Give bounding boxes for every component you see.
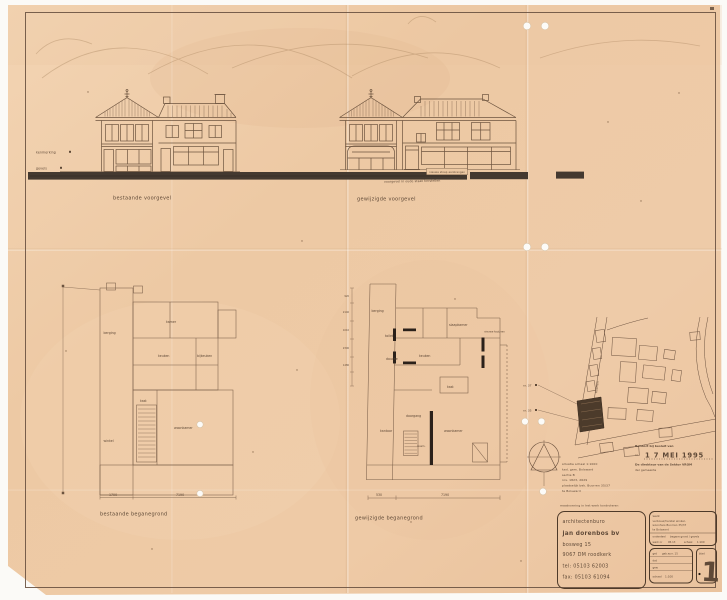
stamp-line: der gemeente bbox=[635, 468, 656, 472]
onderdeel-value: begane grond / gevels bbox=[670, 535, 700, 539]
room-label: doorgang bbox=[406, 414, 421, 418]
dimension: 7190 bbox=[441, 493, 449, 497]
title-elevation-modified: gewijzigde voorgevel bbox=[357, 197, 416, 203]
punch-hole bbox=[523, 22, 531, 30]
blad-label: blad bbox=[699, 552, 705, 556]
drawing-canvas: kenmerking gevels nieu bbox=[0, 0, 727, 600]
room-label: kast bbox=[447, 385, 454, 389]
dimension: 1480 bbox=[343, 364, 350, 367]
room-label: douche bbox=[386, 357, 398, 361]
approval-date: 1 7 MEI 1995 bbox=[645, 452, 704, 460]
room-label: bijkeuken bbox=[197, 354, 212, 358]
schaal-value: 1:100 bbox=[665, 575, 673, 579]
kadaster-line: sectie B bbox=[562, 473, 575, 477]
room-label: toilet bbox=[385, 334, 394, 338]
dimension: 7190 bbox=[176, 493, 184, 497]
punch-hole bbox=[540, 488, 547, 495]
kadaster-line: plaatselijk bek. Buorren 35/37 bbox=[562, 484, 610, 488]
title-plan-modified: gewijzigde beganegrond bbox=[355, 516, 423, 522]
room-label: kamer bbox=[166, 320, 177, 324]
punch-hole bbox=[523, 243, 531, 251]
title-plan-existing: bestaande beganegrond bbox=[100, 512, 168, 518]
dimension: 920 bbox=[344, 295, 349, 298]
kadaster-line: nrs. 1823, 2629 bbox=[562, 478, 587, 482]
architect-name: jan dorenbos bv bbox=[562, 531, 620, 537]
architect-phone: tel: 05103 62003 bbox=[563, 564, 609, 570]
stamp-nr-label: nr. bbox=[635, 453, 639, 457]
schaal-label: schaal bbox=[653, 575, 662, 579]
onderdeel-label: onderdeel bbox=[653, 535, 666, 539]
room-label: woonkamer bbox=[174, 426, 193, 430]
title-elevation-existing: bestaande voorgevel bbox=[113, 196, 171, 202]
margin-note-top: kenmerking bbox=[36, 151, 56, 155]
check-note: maatvoering in het werk kontroleren bbox=[560, 504, 619, 508]
architect-line: architectenburo bbox=[563, 519, 606, 525]
stamp-line: Behoort bij besluit van bbox=[635, 444, 674, 448]
dimension: 530 bbox=[376, 493, 382, 497]
get-label: get bbox=[653, 552, 657, 556]
punch-hole bbox=[522, 418, 529, 425]
annotation: nieuwe kozijnen bbox=[484, 330, 505, 334]
scanned-drawing-page: kenmerking gevels nieu bbox=[0, 0, 727, 600]
room-label: keuken bbox=[419, 354, 430, 358]
dimension: 2300 bbox=[343, 347, 350, 350]
architect-fax: fax: 05103 61094 bbox=[563, 575, 610, 581]
punch-hole bbox=[541, 243, 549, 251]
room-label: woonkamer bbox=[444, 429, 463, 433]
blad-number: 1 bbox=[701, 557, 721, 589]
werk-line: te Bolsward bbox=[653, 527, 670, 531]
gew-label: gew bbox=[653, 567, 659, 570]
kadaster-line: situatie schaal 1:1000 bbox=[562, 462, 597, 466]
room-label: kantoor bbox=[380, 429, 393, 433]
room-label: wasm. bbox=[417, 445, 426, 448]
schaal-value: 1:100 bbox=[697, 540, 705, 544]
room-label: berging bbox=[104, 331, 116, 335]
architect-line: 9067 DM roodkerk bbox=[563, 552, 612, 558]
band-note: nieuwe stoep aanbrengen bbox=[429, 170, 465, 174]
get-value: geb.w.nr. 15 bbox=[662, 552, 678, 556]
room-label: keuken bbox=[158, 354, 169, 358]
punch-hole bbox=[197, 421, 203, 427]
architect-line: bosweg 15 bbox=[563, 542, 592, 548]
stamp-line: De direkteur van de Sektor VROM bbox=[635, 463, 692, 467]
room-label: berging bbox=[372, 309, 384, 313]
room-label: winkel bbox=[104, 439, 114, 443]
punch-hole bbox=[197, 490, 203, 496]
room-label: slaapkamer bbox=[449, 323, 468, 327]
punch-hole bbox=[538, 418, 545, 425]
werknr-value: 95.13 bbox=[668, 540, 676, 544]
schaal-label: schaal bbox=[684, 540, 693, 544]
werk-label: werk bbox=[653, 514, 661, 518]
dimension: 1700 bbox=[109, 493, 117, 497]
punch-hole bbox=[541, 22, 549, 30]
blad-info: blad 1 bbox=[698, 552, 721, 589]
margin-note-bottom: gevels bbox=[36, 167, 47, 171]
kadaster-line: kad. gem. Bolsward bbox=[562, 467, 593, 471]
dimension: 1010 bbox=[343, 329, 350, 332]
dat-label: dat bbox=[653, 559, 657, 563]
house-number-label: nr. 35 bbox=[523, 409, 532, 413]
house-number-label: nr. 37 bbox=[523, 384, 532, 388]
kadaster-line: te Bolsward bbox=[562, 489, 581, 493]
werk-line: verbouw/herstel winkel- bbox=[653, 519, 686, 523]
werknr-label: werk nr bbox=[653, 540, 664, 544]
werk-line: woonhuis Buorren 35/37 bbox=[653, 523, 687, 527]
room-label: kast bbox=[140, 399, 147, 403]
dimension: 2140 bbox=[343, 311, 350, 314]
